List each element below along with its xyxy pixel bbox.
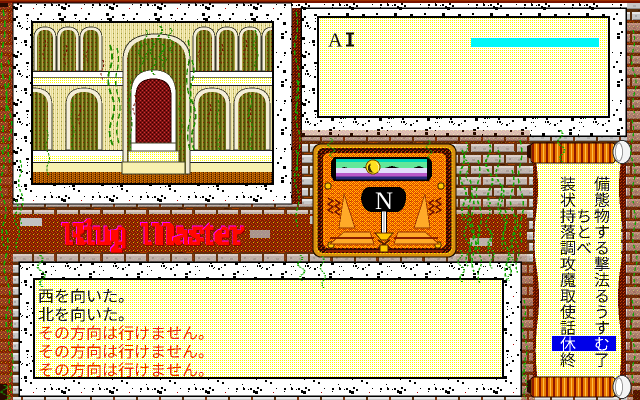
svg-text:A: A [328,30,343,52]
